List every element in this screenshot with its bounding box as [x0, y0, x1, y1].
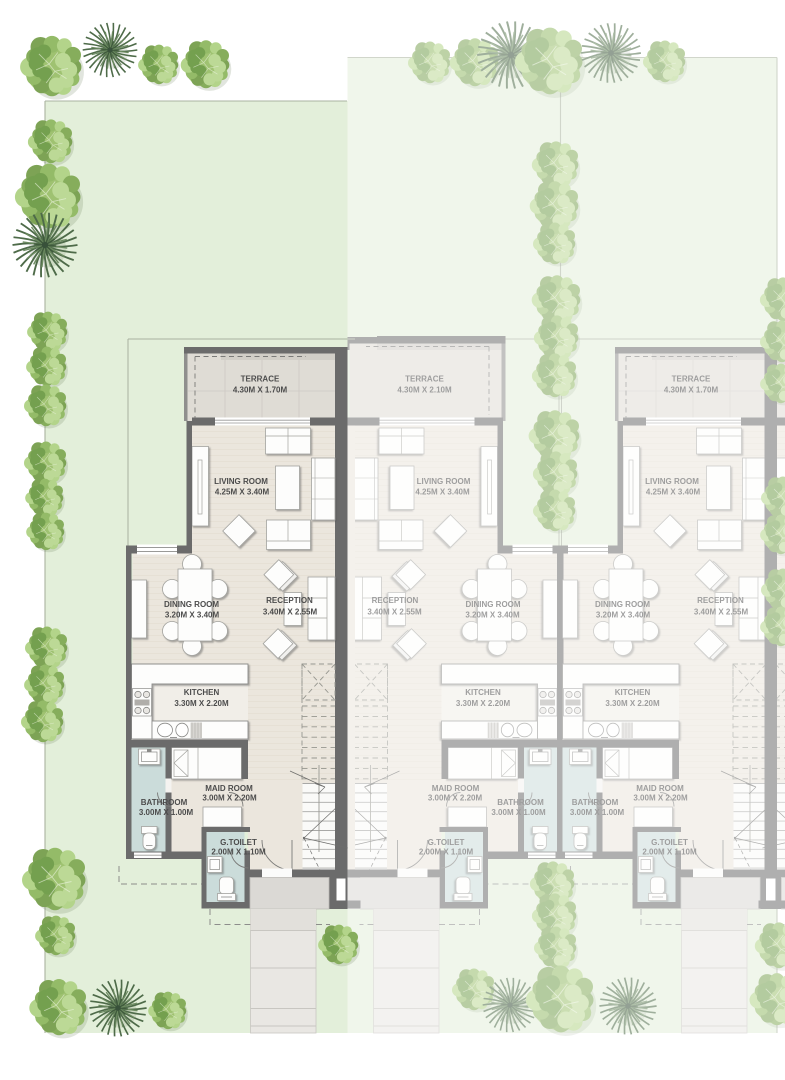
svg-text:KITCHEN: KITCHEN	[184, 688, 220, 697]
svg-text:RECEPTION: RECEPTION	[266, 596, 313, 605]
svg-text:3.00M X 1.00M: 3.00M X 1.00M	[139, 808, 194, 817]
svg-text:LIVING ROOM: LIVING ROOM	[214, 477, 268, 486]
svg-text:DINING ROOM: DINING ROOM	[164, 600, 219, 609]
svg-text:2.00M X 1.10M: 2.00M X 1.10M	[211, 848, 266, 857]
svg-text:BATHROOM: BATHROOM	[141, 798, 188, 807]
svg-text:3.40M X 2.55M: 3.40M X 2.55M	[263, 608, 318, 617]
svg-text:3.20M X 3.40M: 3.20M X 3.40M	[165, 611, 220, 620]
svg-text:4.30M X 1.70M: 4.30M X 1.70M	[233, 386, 288, 395]
svg-text:4.25M X 3.40M: 4.25M X 3.40M	[215, 488, 270, 497]
svg-text:MAID ROOM: MAID ROOM	[205, 784, 253, 793]
svg-text:3.30M X 2.20M: 3.30M X 2.20M	[174, 699, 229, 708]
svg-text:3.00M X 2.20M: 3.00M X 2.20M	[202, 794, 257, 803]
svg-text:G.TOILET: G.TOILET	[220, 838, 257, 847]
svg-text:TERRACE: TERRACE	[241, 375, 280, 384]
